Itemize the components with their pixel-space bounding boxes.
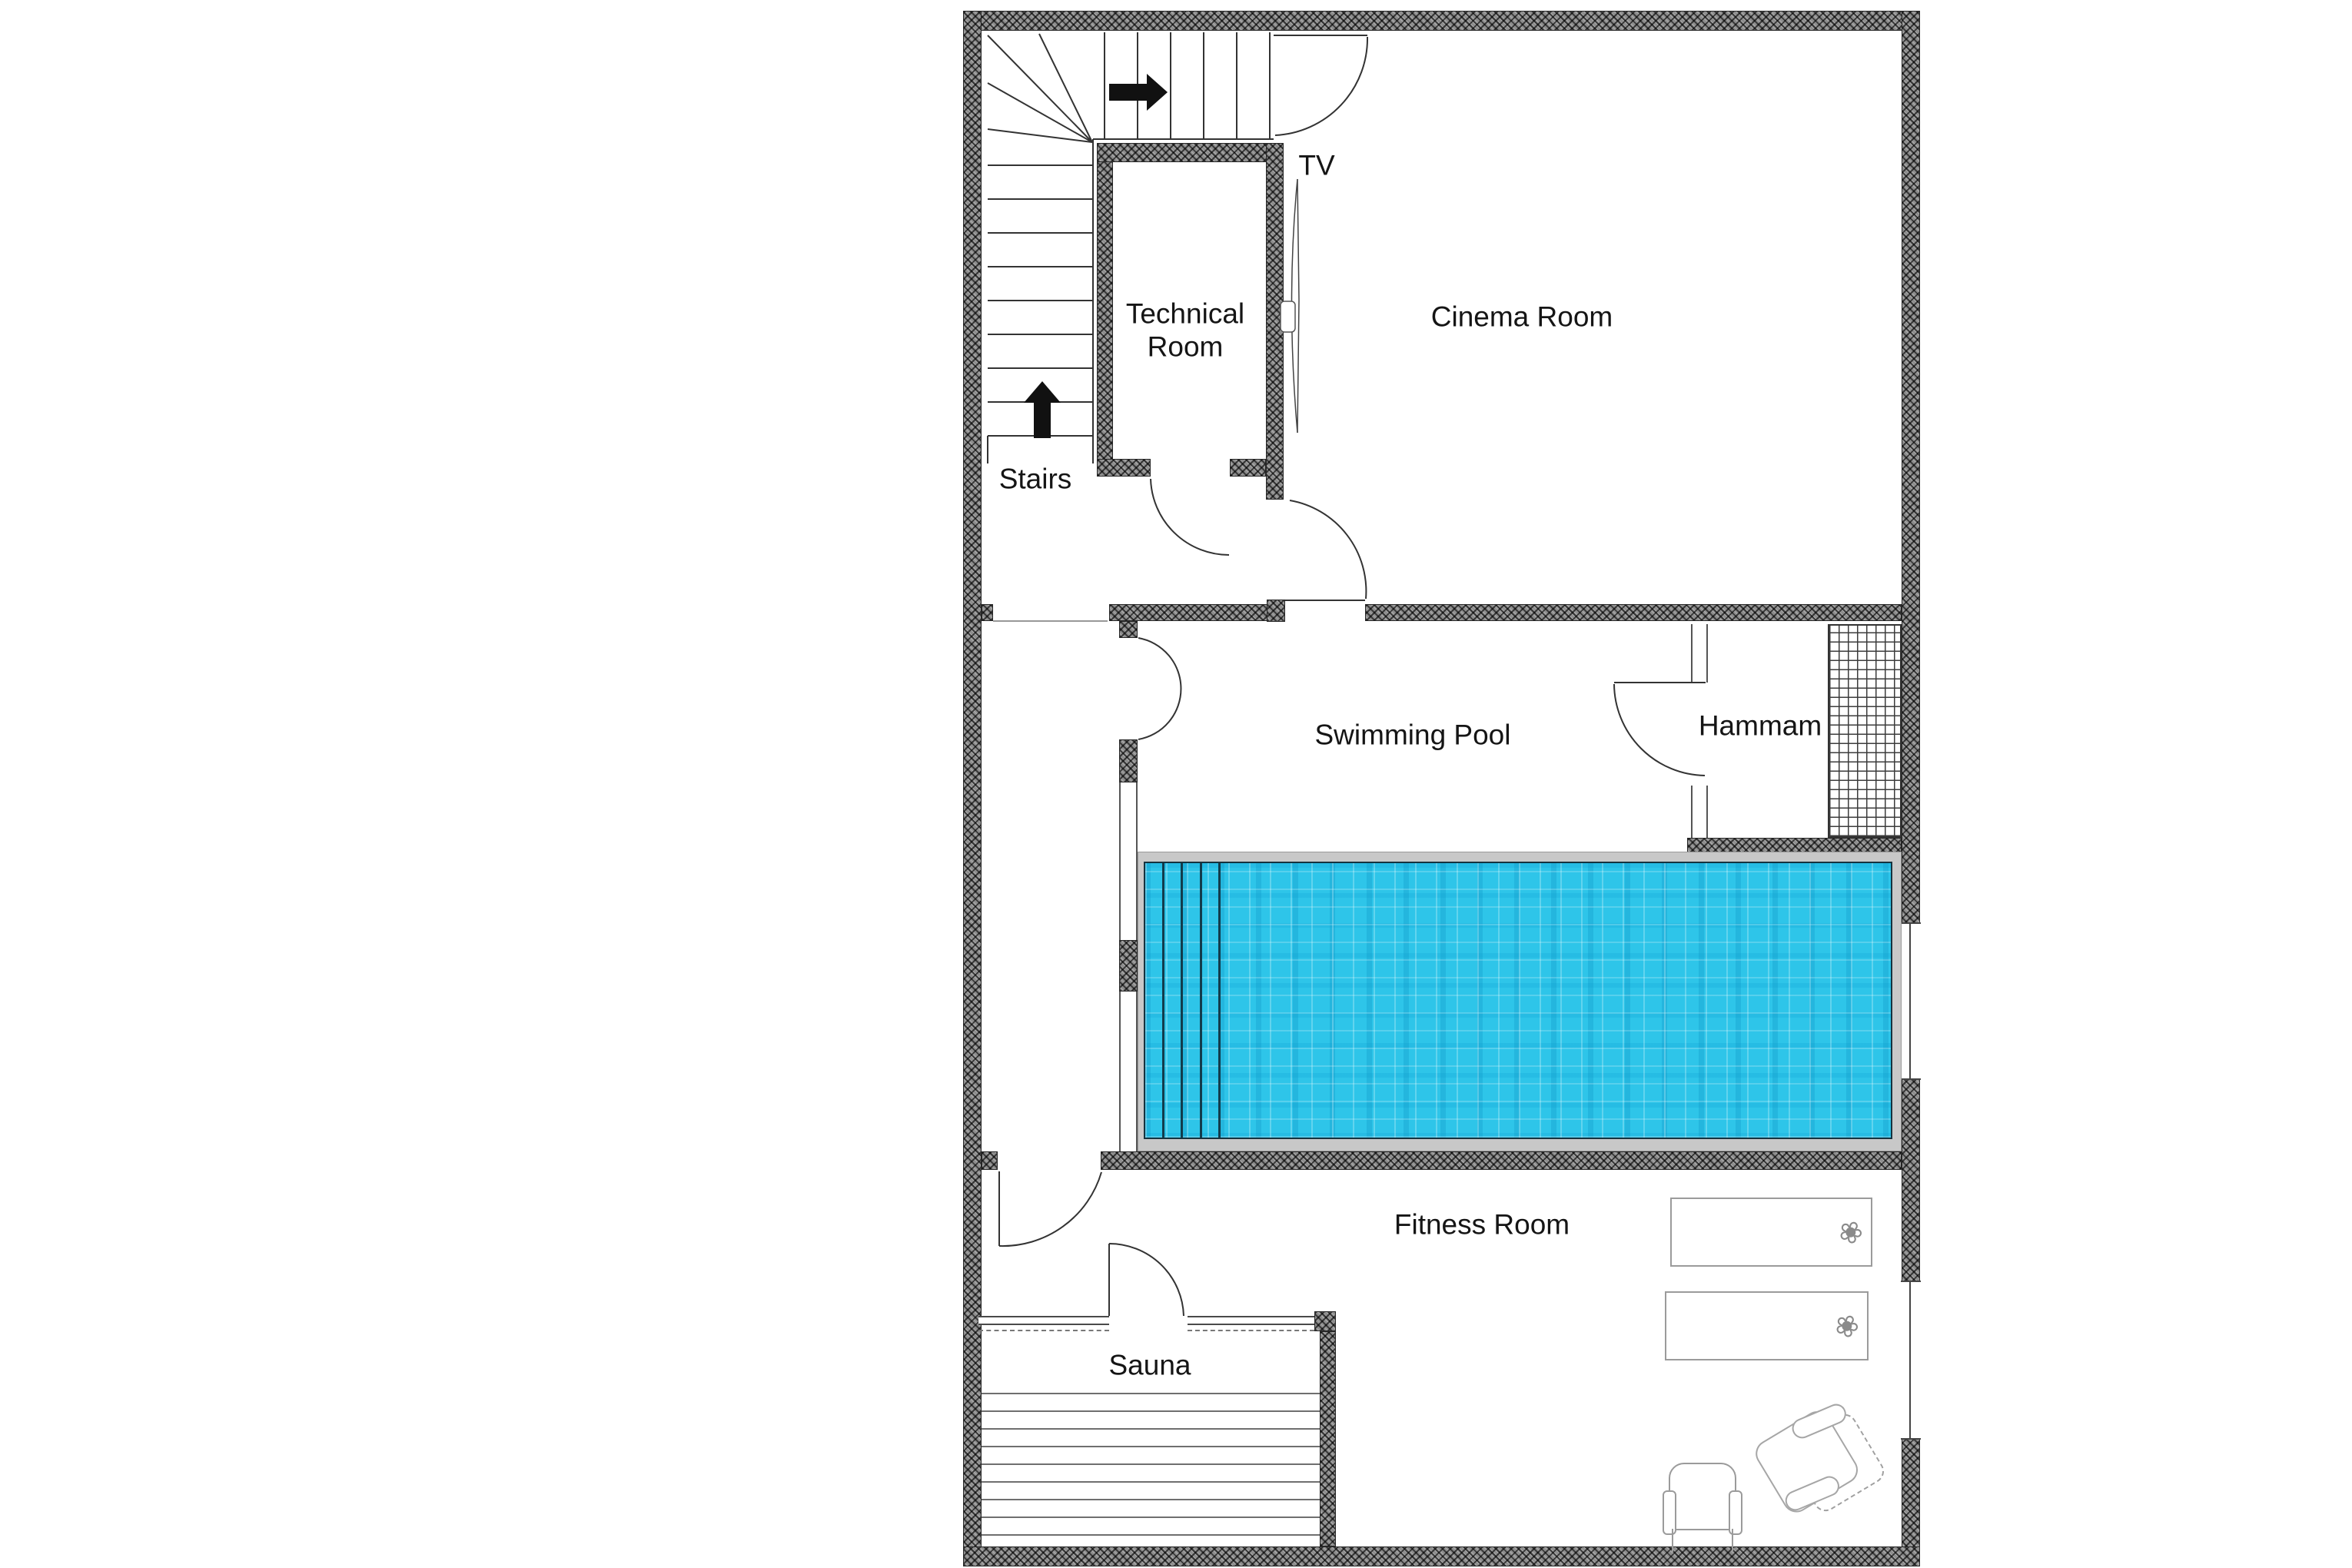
door-hammam xyxy=(1614,683,1706,776)
room-label-hammam: Hammam xyxy=(1699,710,1822,743)
door-fitness-room xyxy=(999,1171,1101,1246)
stairs-winder-fan xyxy=(988,34,1092,142)
stairs-up-arrow-icon xyxy=(1024,381,1061,438)
room-label-swimming-pool: Swimming Pool xyxy=(1315,719,1511,752)
door-vestibule xyxy=(1285,500,1366,600)
tv-icon xyxy=(1281,179,1299,433)
room-label-fitness-room: Fitness Room xyxy=(1394,1209,1570,1242)
annotation-tv: TV xyxy=(1298,150,1334,183)
door-sauna xyxy=(1109,1244,1184,1316)
room-label-cinema-room: Cinema Room xyxy=(1431,301,1613,334)
floor-plan-canvas: ❀ ❀ xyxy=(0,0,2352,1568)
room-label-stairs: Stairs xyxy=(999,463,1072,497)
plan-linework xyxy=(0,0,2352,1568)
room-label-technical-room: Technical Room xyxy=(1108,297,1262,363)
door-corridor-pool xyxy=(1138,638,1181,739)
room-label-sauna: Sauna xyxy=(1109,1350,1191,1383)
door-technical-room xyxy=(1151,479,1229,555)
door-stairs-cinema xyxy=(1274,35,1367,135)
